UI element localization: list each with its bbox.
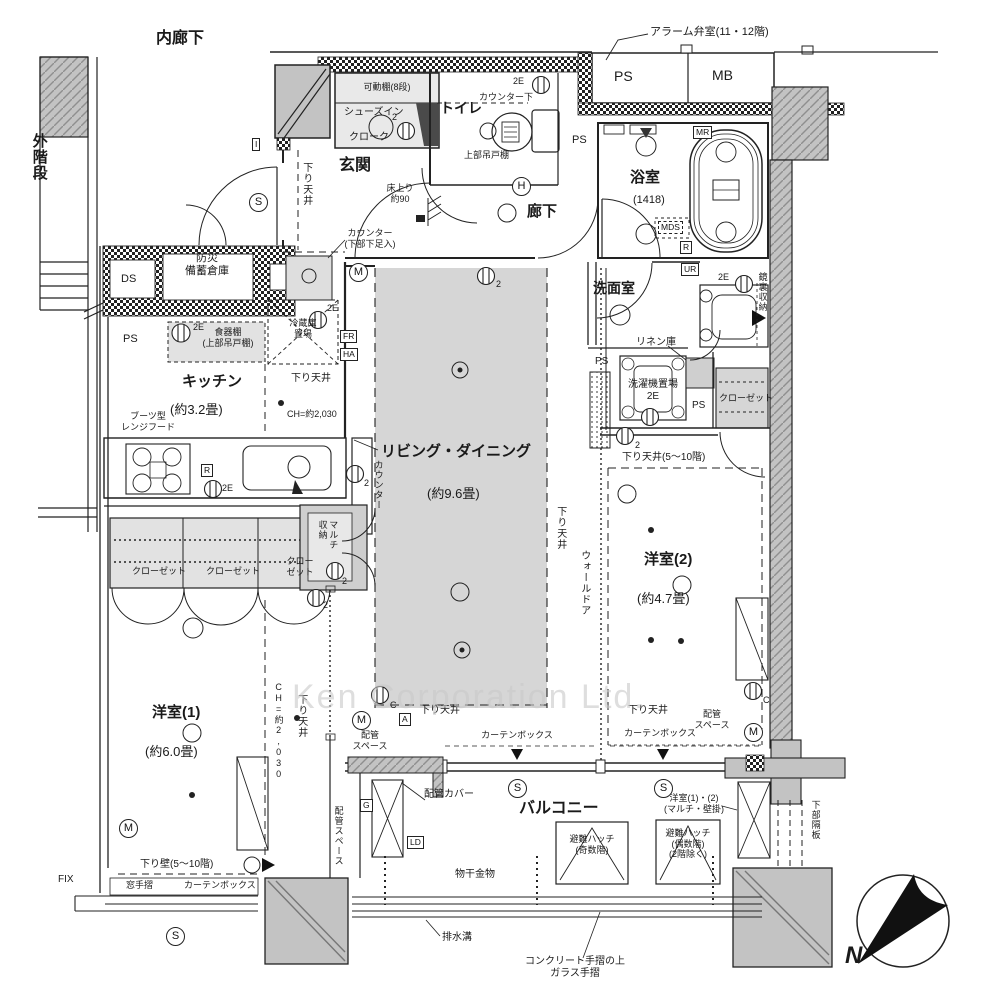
label-mb: MB	[712, 67, 733, 84]
label-north: N	[845, 942, 862, 970]
label-pipe-space-br2: 配管 スペース	[695, 709, 730, 730]
label-wall-door: ウォールドア	[578, 550, 590, 616]
label-ps-toilet: PS	[572, 134, 587, 147]
label-dropped-5-10: 下り天井(5〜10階)	[622, 452, 705, 464]
label-bathroom: 浴室	[630, 169, 660, 187]
label-counter-shoe: カウンター (下部下足入)	[345, 228, 396, 249]
label-living-size: (約9.6畳)	[427, 486, 480, 501]
label-entrance: 玄関	[339, 157, 371, 176]
label-pipe-space-ld: 配管 スペース	[353, 730, 388, 751]
label-toilet: トイレ	[440, 100, 482, 117]
label-dropped-ld: 下り天井	[554, 506, 566, 550]
label-closet-right: クローゼット	[719, 393, 773, 404]
symbol-mds-box: MDS	[658, 221, 683, 234]
label-mirror-outlet: 2E	[718, 272, 729, 283]
label-balcony: バルコニー	[519, 800, 599, 819]
symbol-r-bath: R	[680, 241, 692, 254]
label-ch-bedroom1: CH=約2,030	[273, 682, 284, 780]
label-pipe-cover: 配管カバー	[424, 789, 474, 801]
label-curtain-ld: カーテンボックス	[481, 730, 553, 741]
label-mirror-storage: 鏡裏収納	[757, 272, 768, 312]
label-closet1: クローゼット	[132, 566, 186, 577]
label-inner-corridor: 内廊下	[156, 30, 204, 49]
symbol-s-entrance: S	[249, 193, 268, 212]
label-bedroom2: 洋室(2)	[644, 551, 692, 569]
label-upper-cabinet: 上部吊戸棚	[464, 150, 509, 161]
symbol-c-ld: C	[390, 700, 397, 711]
hallway	[345, 183, 606, 266]
symbol-m-ld-top: M	[349, 263, 368, 282]
symbol-s-balcony2: S	[654, 779, 673, 798]
label-pipe-space-balcony: 配管スペース	[333, 806, 344, 866]
label-movable-shelf: 可動棚(8段)	[364, 82, 411, 93]
label-outer-stairs: 外階段	[30, 133, 48, 181]
label-fridge: 冷蔵庫 置場	[289, 318, 316, 339]
label-counter-outlet: 2	[364, 478, 369, 489]
label-washer: 洗濯機置場 2E	[628, 379, 678, 403]
label-kitchen: キッチン	[182, 373, 242, 391]
label-laundry-pole: 物干金物	[455, 869, 495, 881]
label-range-hood: ブーツ型 レンジフード	[121, 411, 175, 432]
symbol-s-balcony1: S	[508, 779, 527, 798]
label-br2-outlet: 2	[635, 440, 640, 451]
label-dish-shelf: 食器棚 (上部吊戸棚)	[203, 327, 254, 348]
bathroom	[598, 123, 768, 258]
label-ps-mid2: PS	[692, 400, 705, 412]
label-curtain-br2: カーテンボックス	[624, 728, 696, 739]
label-closet2: クローゼット	[206, 566, 260, 577]
label-multi-storage: マルチ 収納	[317, 520, 338, 550]
label-ch-kitchen: CH=約2,030	[287, 409, 337, 420]
label-sic-count: 2	[392, 112, 397, 123]
symbol-ld-box: LD	[407, 836, 424, 849]
label-washroom: 洗面室	[593, 280, 635, 297]
symbol-c-br2: C	[763, 695, 770, 706]
label-dropped-kitchen: 下り天井	[291, 373, 331, 385]
label-drain: 排水溝	[442, 932, 472, 944]
label-dropped-wall: 下り壁(5〜10階)	[140, 859, 213, 871]
label-br1-outlet: 2	[323, 600, 328, 611]
label-bedroom1-size: (約6.0畳)	[145, 744, 198, 759]
label-disaster-storage: 防災 備蓄倉庫	[185, 252, 229, 278]
label-bedroom1: 洋室(1)	[152, 704, 200, 722]
label-hatch-even: 避難ハッチ (偶数階) (2階除く)	[665, 828, 710, 860]
label-fix: FIX	[58, 874, 74, 886]
label-cloak: クローク	[349, 132, 389, 144]
exterior-stairs	[38, 57, 103, 532]
floor-plan-page: 内廊下 外階段 アラーム弁室(11・12階) PS MB 可動棚(8段) シュー…	[0, 0, 1000, 1000]
symbol-a-box: A	[399, 713, 411, 726]
label-hatch-odd: 避難ハッチ (奇数階)	[569, 834, 614, 855]
label-living-dining: リビング・ダイニング	[381, 443, 531, 461]
symbol-s-south: S	[166, 927, 185, 946]
label-ld-outlet: 2	[496, 279, 501, 290]
symbol-m-br2: M	[744, 723, 763, 742]
label-kitchen-size: (約3.2畳)	[170, 402, 223, 417]
east-wall	[770, 87, 828, 748]
label-counter: カウンター	[373, 460, 384, 510]
label-ps-mid1: PS	[595, 356, 608, 368]
label-bedroom2-size: (約4.7畳)	[637, 591, 690, 606]
label-under-counter: カウンター下	[479, 92, 533, 103]
label-multi-outlet: 2	[342, 576, 347, 587]
label-ds: DS	[121, 273, 136, 286]
symbol-h-hall: H	[512, 177, 531, 196]
label-dropped-ceiling-entrance: 下り天井	[300, 162, 312, 206]
label-curtain-br1: カーテンボックス	[184, 880, 256, 891]
label-closet3: クロー ゼット	[286, 556, 313, 577]
label-bathroom-size: (1418)	[633, 194, 665, 207]
watermark: Ken Corporation Ltd.	[292, 678, 646, 717]
symbol-i-box: I	[252, 138, 260, 151]
label-ps-top: PS	[614, 68, 633, 85]
label-handrail: コンクリート手摺の上 ガラス手摺	[525, 956, 625, 980]
symbol-m-br1: M	[119, 819, 138, 838]
label-sink-outlet: 2E	[222, 483, 233, 494]
label-floor-step: 床上り 約90	[386, 183, 413, 204]
label-window-rail: 窓手摺	[126, 880, 153, 891]
symbol-g-box: G	[360, 799, 373, 812]
label-hallway: 廊下	[527, 203, 557, 221]
compass	[857, 874, 949, 967]
label-lower-partition: 下部隔板	[810, 800, 821, 840]
symbol-fr-box: FR	[340, 330, 357, 343]
symbol-ur-box: UR	[681, 263, 699, 276]
washroom	[588, 262, 768, 348]
symbol-r-kitchen: R	[201, 464, 213, 477]
label-toilet-outlet: 2E	[513, 76, 524, 87]
west-wall	[100, 246, 108, 893]
label-ac-note: 洋室(1)・(2) (マルチ・壁掛)	[664, 793, 724, 814]
label-alarm-valve-room: アラーム弁室(11・12階)	[650, 26, 769, 39]
symbol-m-ld-bottom: M	[352, 711, 371, 730]
label-fridge-outlet: 2E	[327, 303, 338, 314]
balcony-area	[265, 737, 845, 967]
label-linen: リネン庫	[636, 337, 676, 349]
label-ps-left: PS	[123, 333, 138, 346]
symbol-mr-box: MR	[693, 126, 712, 139]
symbol-ha-box: HA	[340, 348, 358, 361]
